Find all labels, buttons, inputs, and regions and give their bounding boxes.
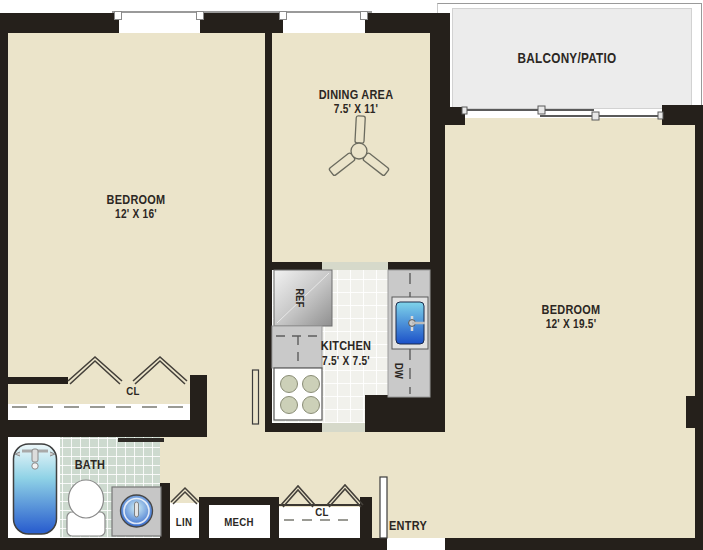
bedroom2-dims: 12' X 19.5': [546, 317, 597, 331]
kitchen-dims: 7.5' X 7.5': [322, 354, 370, 368]
closet1-label: CL: [126, 385, 139, 397]
window-bracket: [196, 11, 204, 20]
kitchen-top-threshold: [322, 262, 388, 270]
floor-plan: BEDROOM 12' X 16' DINING AREA 7.5' X 11'…: [0, 0, 703, 550]
bedroom2-label: BEDROOM: [542, 302, 601, 317]
window-sill-line: [112, 11, 372, 13]
closet2-label: CL: [315, 506, 328, 518]
balcony-left-foot: [450, 107, 465, 125]
window-bracket: [360, 11, 368, 20]
dishwasher-label: DW: [393, 363, 405, 379]
closet1-interior: [8, 404, 190, 420]
tub-alcove: [8, 437, 60, 538]
mech-top-wall: [199, 497, 279, 505]
bedroom1-dining-wall: [265, 33, 272, 262]
dining-dims: 7.5' X 11': [334, 102, 378, 116]
bedroom1-bottom-stub: [0, 377, 68, 384]
bottom-wall-right: [445, 538, 703, 550]
kitchen-bottom-wall: [265, 423, 322, 432]
closet2-east-pillar: [360, 497, 372, 538]
entry-label: ENTRY: [389, 518, 427, 533]
kitchen-bottom-threshold: [322, 423, 365, 432]
window-bracket: [114, 11, 122, 20]
dining-label: DINING AREA: [319, 87, 394, 102]
bedroom1-dims: 12' X 16': [115, 207, 157, 221]
kitchen-label: KITCHEN: [321, 338, 371, 353]
bath-door-bar: [118, 438, 164, 442]
balcony-label: BALCONY/PATIO: [518, 50, 617, 66]
bath-label: BATH: [75, 457, 106, 472]
kitchen-top-wall-right: [388, 262, 430, 270]
linen-label: LIN: [176, 516, 192, 528]
top-wall: [0, 13, 450, 33]
left-wall: [0, 13, 8, 538]
right-wall: [695, 105, 703, 550]
refrigerator-label: REF: [294, 288, 306, 307]
bedroom2-west-wall: [430, 33, 445, 432]
mech-label: MECH: [224, 516, 253, 528]
window-icon: [119, 13, 200, 33]
bottom-wall-left: [0, 538, 387, 550]
mech-east-pillar: [270, 497, 279, 538]
window-bracket: [279, 11, 287, 20]
kitchen-corner-block: [365, 395, 445, 432]
balcony-right-wall: [662, 105, 695, 125]
kitchen-top-wall-left: [272, 262, 322, 270]
kitchen-west-wall: [265, 262, 272, 432]
bedroom1-label: BEDROOM: [107, 192, 166, 207]
bath-top-wall: [0, 420, 207, 437]
right-wall-notch: [686, 396, 695, 428]
window-icon: [283, 13, 365, 33]
bath-east-pillar: [160, 483, 170, 538]
